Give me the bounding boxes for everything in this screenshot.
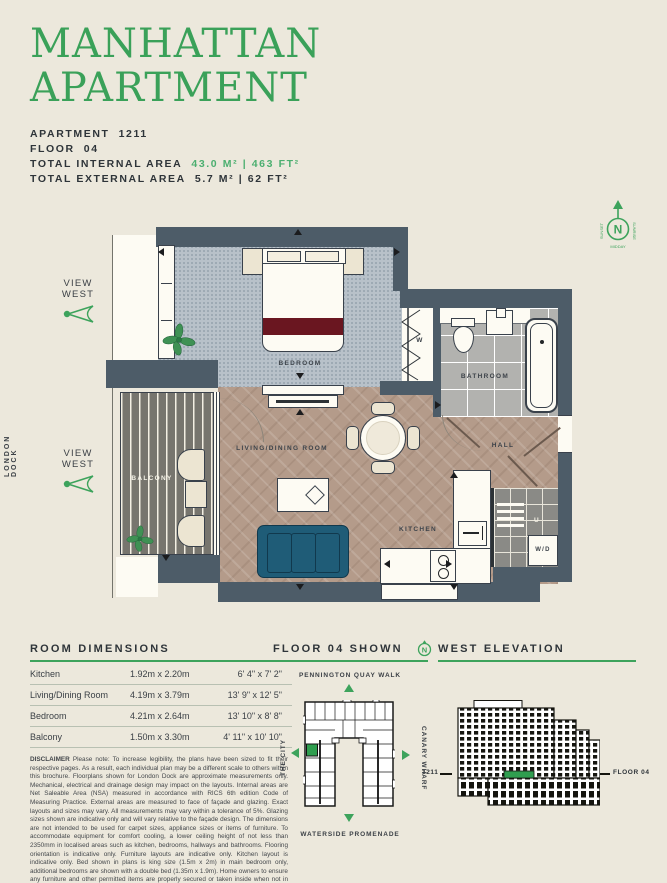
floorplate-section: FLOOR 04 SHOWN N <box>273 643 431 662</box>
brochure-page: MANHATTAN APARTMENT APARTMENT 1211 FLOOR… <box>0 0 667 883</box>
floor-line: FLOOR 04 <box>30 142 300 157</box>
room-imperial: 6' 4" x 7' 2" <box>212 669 282 679</box>
direction-arrow-east <box>402 750 410 760</box>
direction-arrow <box>384 560 390 568</box>
room-name: Living/Dining Room <box>30 690 130 700</box>
page-title-line2: APARTMENT <box>30 66 321 110</box>
direction-arrow <box>296 584 304 590</box>
room-metric: 1.50m x 3.30m <box>130 732 212 742</box>
elevation-unit-label: 1211 <box>422 769 438 776</box>
leader-line <box>440 773 452 775</box>
compass-icon: N SUNSET SUNRISE MIDDAY <box>592 198 644 256</box>
internal-area-value: 43.0 M² | 463 FT² <box>191 158 299 170</box>
apartment-number-line: APARTMENT 1211 <box>30 127 300 142</box>
plant-icon <box>162 323 196 357</box>
plan-margin <box>116 557 158 597</box>
elevation-header: WEST ELEVATION <box>438 643 638 655</box>
hall-label: HALL <box>484 442 522 449</box>
dining-chair <box>407 426 420 450</box>
coffee-table <box>277 478 329 512</box>
balcony-table <box>185 481 207 508</box>
view-west-upper-label: VIEW WEST <box>56 278 100 300</box>
disclaimer-label: DISCLAIMER <box>30 756 70 763</box>
internal-area-label: TOTAL INTERNAL AREA <box>30 158 182 170</box>
direction-arrow <box>296 373 304 379</box>
utility-label: U <box>530 517 544 524</box>
room-imperial: 13' 10" x 8' 8" <box>212 711 282 721</box>
wall <box>156 227 408 247</box>
direction-arrow <box>450 472 458 478</box>
direction-arrow <box>158 248 164 256</box>
wall <box>393 227 408 291</box>
street-label-left: THE CITY <box>280 733 287 783</box>
direction-arrow <box>162 555 170 561</box>
green-rule <box>30 660 292 662</box>
utility-shelf <box>497 517 524 520</box>
elevation-floor-label: FLOOR 04 <box>613 769 650 776</box>
pillow <box>305 251 339 262</box>
leader-line <box>600 773 610 775</box>
living-dining-label: LIVING/DINING ROOM <box>228 445 336 452</box>
view-west-icon <box>60 473 96 495</box>
wall <box>558 289 572 417</box>
direction-arrow <box>294 229 302 235</box>
site-plan <box>303 700 395 808</box>
direction-arrow <box>435 401 441 409</box>
table-row: Bedroom 4.21m x 2.64m 13' 10" x 8' 8" <box>30 706 292 727</box>
internal-area-line: TOTAL INTERNAL AREA 43.0 M² | 463 FT² <box>30 157 300 172</box>
bathtub <box>525 318 558 413</box>
wall <box>218 582 540 602</box>
north-arrow-icon <box>613 200 623 209</box>
room-name: Bedroom <box>30 711 130 721</box>
view-west-lower-label: VIEW WEST <box>56 448 100 470</box>
direction-arrow-south <box>344 814 354 822</box>
street-label-top: PENNINGTON QUAY WALK <box>280 672 420 679</box>
direction-arrow <box>296 409 304 415</box>
dining-chair <box>371 461 395 474</box>
utility-shelf <box>497 503 524 506</box>
room-dimensions-header: ROOM DIMENSIONS <box>30 643 292 655</box>
kitchen-hob <box>430 550 456 582</box>
plan-margin <box>112 235 158 360</box>
room-imperial: 13' 9" x 12' 5" <box>212 690 282 700</box>
room-metric: 4.19m x 3.79m <box>130 690 212 700</box>
external-area-value: 5.7 M² | 62 FT² <box>195 173 288 185</box>
media-unit <box>262 385 344 395</box>
pillow <box>267 251 301 262</box>
room-metric: 1.92m x 2.20m <box>130 669 212 679</box>
kitchen-window <box>381 584 458 600</box>
sofa <box>257 525 349 578</box>
dining-table <box>360 415 406 461</box>
bed <box>262 255 344 352</box>
kitchen-label: KITCHEN <box>391 526 445 533</box>
compass-midday: MIDDAY <box>610 244 626 249</box>
balcony-chair <box>177 449 205 481</box>
direction-arrow <box>394 248 400 256</box>
page-title: MANHATTAN APARTMENT <box>30 22 321 110</box>
washer-dryer-label: W/D <box>529 547 557 553</box>
view-west-lower: VIEW WEST <box>56 448 100 500</box>
external-area-label: TOTAL EXTERNAL AREA <box>30 173 186 185</box>
wardrobe-rail-icon <box>396 308 436 381</box>
utility-shelf <box>497 510 524 513</box>
external-area-line: TOTAL EXTERNAL AREA 5.7 M² | 62 FT² <box>30 172 300 187</box>
floor-label: FLOOR <box>30 143 75 155</box>
compass-small-icon: N <box>416 640 433 657</box>
direction-arrow-west <box>291 748 299 758</box>
view-west-icon <box>60 303 96 325</box>
compass-small-n: N <box>422 645 427 654</box>
apartment-info: APARTMENT 1211 FLOOR 04 TOTAL INTERNAL A… <box>30 127 300 187</box>
plant-icon <box>126 525 154 553</box>
bedside-table <box>343 248 364 275</box>
wall <box>558 450 572 572</box>
green-rule <box>438 660 636 662</box>
highlighted-floor <box>504 771 534 778</box>
disclaimer: DISCLAIMER Please note: To increase legi… <box>30 756 288 883</box>
elevation-drawing <box>452 700 600 808</box>
floor-plan: BALCONY <box>100 215 582 640</box>
room-name: Kitchen <box>30 669 130 679</box>
elevation-section: WEST ELEVATION <box>438 643 638 662</box>
table-row: Balcony 1.50m x 3.30m 4' 11" x 10' 10" <box>30 727 292 748</box>
floor-value: 04 <box>84 143 99 155</box>
room-metric: 4.21m x 2.64m <box>130 711 212 721</box>
dining-chair <box>371 402 395 415</box>
tv-soundbar <box>268 395 338 408</box>
wall <box>493 565 572 582</box>
balcony-sliding-door <box>213 392 220 555</box>
street-label-bottom: WATERSIDE PROMENADE <box>280 831 420 838</box>
direction-arrow <box>450 584 458 590</box>
apartment-label: APARTMENT <box>30 128 110 140</box>
direction-arrow <box>446 560 452 568</box>
kitchen-appliance <box>458 521 487 546</box>
room-dimensions-section: ROOM DIMENSIONS Kitchen 1.92m x 2.20m 6'… <box>30 643 292 883</box>
balcony-chair <box>177 515 205 547</box>
floorplate-header: FLOOR 04 SHOWN <box>273 643 431 655</box>
street-label-right: CANARY WHARF <box>420 725 427 791</box>
green-rule <box>273 660 428 662</box>
compass-sunset: SUNSET <box>599 222 604 239</box>
view-west-upper: VIEW WEST <box>56 278 100 330</box>
plan-edge-line <box>112 235 113 598</box>
entry-door-opening <box>558 415 572 453</box>
wall <box>380 381 434 395</box>
side-label-london-dock: LONDON DOCK <box>4 405 18 477</box>
apartment-value: 1211 <box>119 128 148 140</box>
room-dimensions-table: Kitchen 1.92m x 2.20m 6' 4" x 7' 2" Livi… <box>30 664 292 748</box>
dining-chair <box>346 426 359 450</box>
wardrobe-label: W <box>412 337 428 344</box>
room-name: Balcony <box>30 732 130 742</box>
room-imperial: 4' 11" x 10' 10" <box>212 732 282 742</box>
direction-arrow-north <box>344 684 354 692</box>
bedroom-label: BEDROOM <box>260 360 340 367</box>
bed-throw <box>263 318 343 335</box>
disclaimer-text: Please note: To increase legibility, the… <box>30 756 288 883</box>
bathroom-label: BATHROOM <box>452 373 518 380</box>
wall <box>400 289 572 308</box>
balcony-label: BALCONY <box>124 475 180 482</box>
table-row: Living/Dining Room 4.19m x 3.79m 13' 9" … <box>30 685 292 706</box>
highlighted-unit <box>307 744 318 756</box>
table-row: Kitchen 1.92m x 2.20m 6' 4" x 7' 2" <box>30 664 292 685</box>
compass-n: N <box>614 223 623 237</box>
utility-shelf <box>497 524 524 527</box>
utility-door-track <box>491 488 494 567</box>
wall <box>106 360 218 388</box>
bathroom-sink <box>486 310 513 335</box>
bedside-table <box>242 248 263 275</box>
compass-sunrise: SUNRISE <box>632 222 637 240</box>
page-title-line1: MANHATTAN <box>30 22 321 66</box>
